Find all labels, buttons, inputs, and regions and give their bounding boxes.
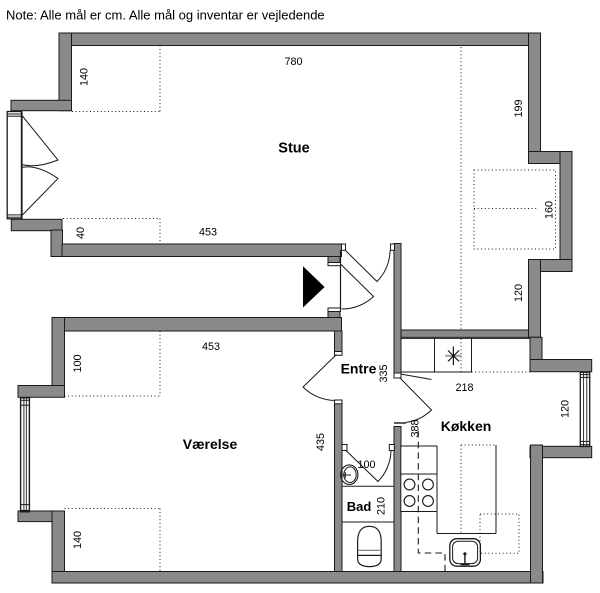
svg-text:Stue: Stue xyxy=(278,141,309,157)
svg-text:Entre: Entre xyxy=(341,361,377,377)
svg-text:Værelse: Værelse xyxy=(183,436,238,452)
svg-text:120: 120 xyxy=(513,284,525,302)
svg-text:453: 453 xyxy=(202,341,220,353)
svg-text:140: 140 xyxy=(72,531,84,549)
svg-text:120: 120 xyxy=(560,400,572,418)
svg-text:335: 335 xyxy=(378,364,390,382)
svg-text:40: 40 xyxy=(75,227,87,239)
svg-text:140: 140 xyxy=(79,68,91,86)
svg-text:453: 453 xyxy=(199,227,217,239)
svg-text:Note: Alle mål er cm. Alle mål: Note: Alle mål er cm. Alle mål og invent… xyxy=(6,8,325,23)
svg-text:218: 218 xyxy=(455,382,473,394)
svg-text:210: 210 xyxy=(376,497,388,515)
svg-text:Bad: Bad xyxy=(347,499,372,514)
svg-text:100: 100 xyxy=(357,459,375,471)
svg-text:160: 160 xyxy=(544,201,556,219)
svg-text:780: 780 xyxy=(284,56,302,68)
svg-text:100: 100 xyxy=(72,354,84,372)
svg-text:435: 435 xyxy=(315,433,327,451)
svg-text:199: 199 xyxy=(513,99,525,117)
svg-text:Køkken: Køkken xyxy=(441,418,492,434)
svg-text:388: 388 xyxy=(410,419,422,437)
